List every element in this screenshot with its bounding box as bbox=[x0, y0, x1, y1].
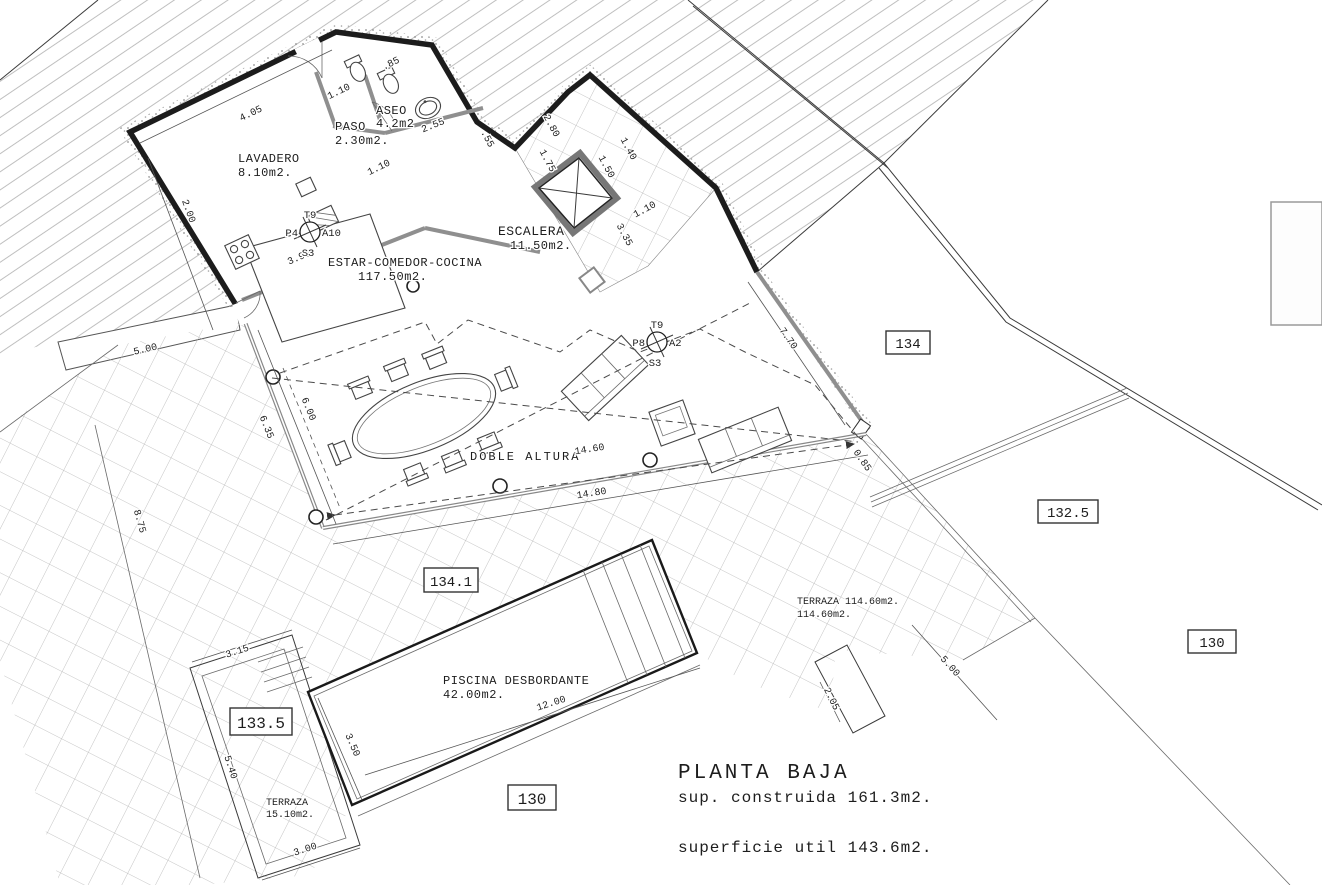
label-paso-area: 2.30m2. bbox=[335, 134, 389, 148]
floor-plan-canvas: LAVADERO 8.10m2. PASO 2.30m2. ASEO 4.2m2… bbox=[0, 0, 1322, 885]
level-132-5: 132.5 bbox=[1047, 506, 1089, 522]
level-134: 134 bbox=[895, 337, 920, 353]
label-piscina-area: 42.00m2. bbox=[443, 688, 505, 702]
label-aseo-area: 4.2m2 bbox=[376, 117, 415, 131]
label-lavadero-area: 8.10m2. bbox=[238, 166, 292, 180]
label-escalera-area: 11.50m2. bbox=[510, 239, 572, 253]
level-134-1: 134.1 bbox=[430, 575, 472, 591]
level-130-right: 130 bbox=[1199, 636, 1224, 652]
label-doble-altura: DOBLE ALTURA bbox=[470, 450, 580, 464]
utility-kitchen-right: A10 bbox=[322, 228, 341, 240]
label-estar-area: 117.50m2. bbox=[358, 270, 427, 284]
label-estar: ESTAR-COMEDOR-COCINA bbox=[328, 256, 482, 270]
label-terraza-principal: TERRAZA 114.60m2. bbox=[797, 597, 899, 608]
plan-useful-area: superficie util 143.6m2. bbox=[678, 839, 932, 857]
utility-kitchen-top: T9 bbox=[304, 210, 317, 222]
label-escalera: ESCALERA bbox=[498, 224, 564, 239]
label-terraza-principal-area: 114.60m2. bbox=[797, 610, 851, 621]
level-133-5: 133.5 bbox=[237, 715, 285, 733]
utility-kitchen-left: P4 bbox=[285, 228, 298, 240]
title-block: PLANTA BAJA sup. construida 161.3m2. sup… bbox=[678, 762, 932, 857]
plan-title: PLANTA BAJA bbox=[678, 762, 850, 785]
label-terraza-inferior: TERRAZA bbox=[266, 798, 308, 809]
utility-living-top: T9 bbox=[651, 320, 664, 332]
floor-plan-drawing: LAVADERO 8.10m2. PASO 2.30m2. ASEO 4.2m2… bbox=[0, 0, 1322, 885]
legend-box-partial bbox=[1271, 202, 1322, 325]
utility-living-right: A2 bbox=[669, 338, 682, 350]
label-piscina: PISCINA DESBORDANTE bbox=[443, 674, 589, 688]
label-aseo: ASEO bbox=[376, 104, 407, 118]
level-130-bottom: 130 bbox=[518, 791, 547, 809]
label-lavadero: LAVADERO bbox=[238, 152, 300, 166]
label-terraza-inferior-area: 15.10m2. bbox=[266, 810, 314, 821]
utility-living-bottom: S3 bbox=[649, 358, 662, 370]
plan-built-area: sup. construida 161.3m2. bbox=[678, 789, 932, 807]
utility-kitchen-bottom: S3 bbox=[302, 248, 315, 260]
utility-living-left: P8 bbox=[632, 338, 645, 350]
label-paso: PASO bbox=[335, 120, 366, 134]
